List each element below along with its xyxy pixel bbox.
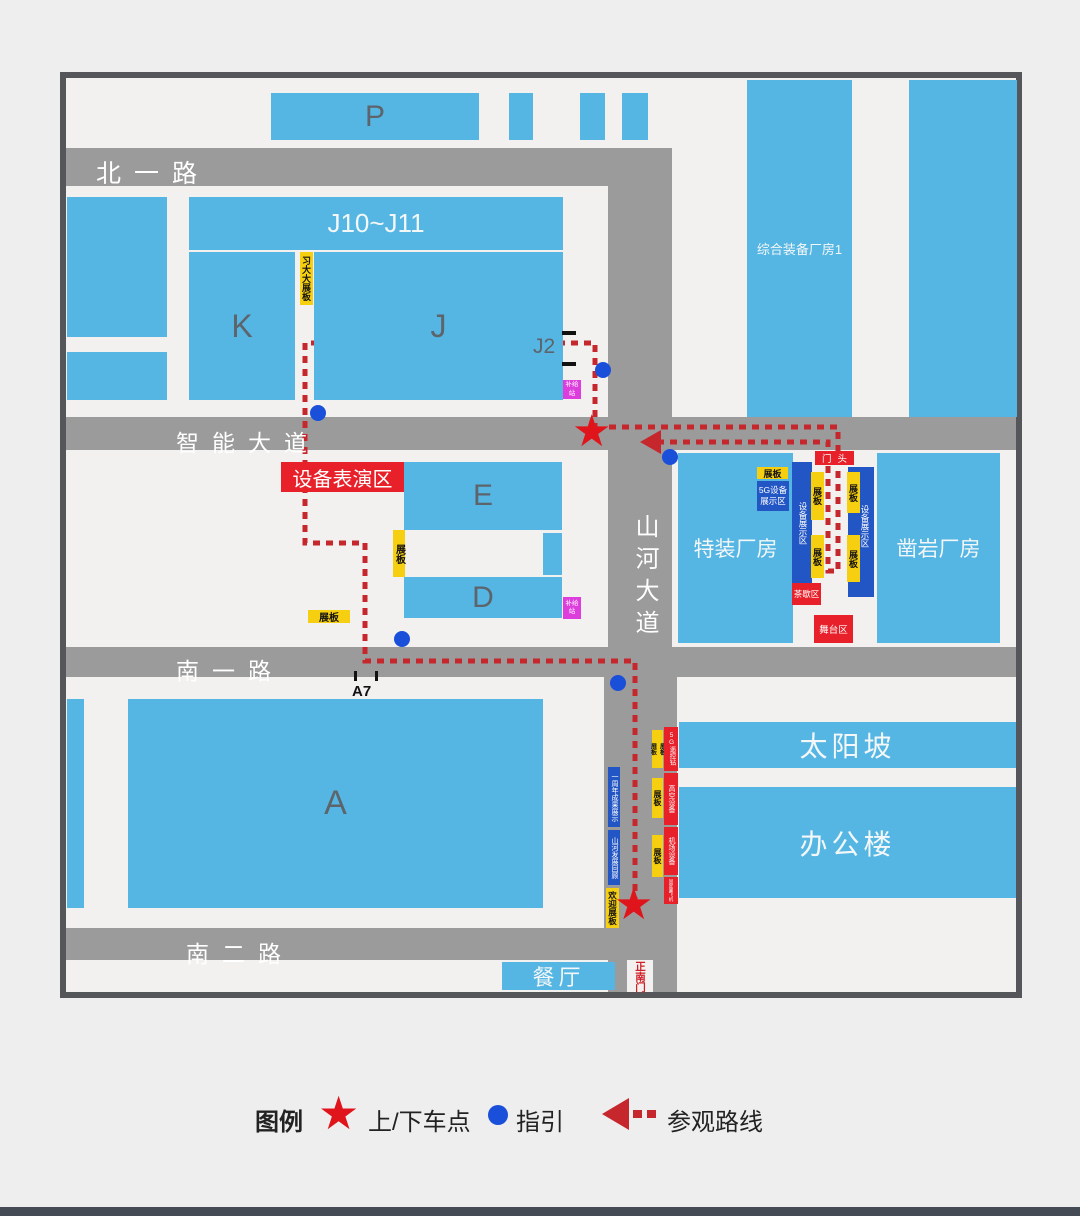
legend-arrow-icon bbox=[602, 1098, 629, 1130]
building-e: E bbox=[404, 462, 562, 530]
display-board-corridor-r2: 展板 bbox=[847, 535, 860, 582]
guide-dot-3 bbox=[662, 449, 678, 465]
building-ed-connector bbox=[543, 533, 562, 575]
display-board-corridor-l1: 展板 bbox=[811, 472, 824, 520]
building-west-sliver bbox=[67, 699, 84, 908]
display-board-east-3: 展板 bbox=[652, 835, 663, 877]
road-label-south2: 南二路 bbox=[186, 935, 294, 969]
a7-tick-left bbox=[354, 671, 357, 681]
building-j2-label: J2 bbox=[533, 335, 555, 359]
display-board-5g-top: 展板 bbox=[757, 467, 788, 479]
a7-gate-label: A7 bbox=[352, 683, 371, 700]
building-rock-drill-plant: 凿岩厂房 bbox=[877, 453, 1000, 643]
legend-route-dash-1 bbox=[633, 1110, 642, 1118]
display-board-east-2: 展板 bbox=[652, 778, 663, 818]
xi-display-board-strip: 习大大展板 bbox=[300, 252, 313, 305]
legend-guide-label: 指引 bbox=[516, 1102, 564, 1137]
building-d: D bbox=[404, 577, 562, 618]
pickup-star-icon-south: ★ bbox=[614, 883, 653, 927]
building-j10-j11: J10~J11 bbox=[189, 197, 563, 250]
road-label-zhineng: 智能大道 bbox=[176, 424, 320, 458]
display-board-east-1a: 展板 bbox=[649, 743, 658, 755]
road-label-shanhe: 山河大道 bbox=[627, 514, 662, 642]
display-board-southwest: 展板 bbox=[308, 610, 350, 623]
tea-break-area: 茶歇区 bbox=[792, 583, 821, 605]
legend-star-icon: ★ bbox=[318, 1090, 359, 1136]
building-northeast-2 bbox=[909, 80, 1017, 417]
j2-gate-tick-bottom bbox=[562, 362, 576, 366]
a7-tick-right bbox=[375, 671, 378, 681]
road-gate-prong-right bbox=[653, 960, 677, 992]
building-small-2 bbox=[580, 93, 605, 140]
equipment-display-column-left: 设备展示区 bbox=[792, 462, 812, 583]
legend-route-dash-2 bbox=[647, 1110, 656, 1118]
equipment-display-zone-label-left: 设备展示区 bbox=[797, 502, 809, 545]
road-shanhe-top bbox=[608, 186, 672, 420]
building-small-1 bbox=[509, 93, 533, 140]
airport-equipment-strip: 机场设备 bbox=[664, 827, 678, 875]
legend-title: 图例 bbox=[255, 1102, 303, 1137]
guide-dot-2 bbox=[595, 362, 611, 378]
g5-display-zone: 5G设备展示区 bbox=[757, 481, 789, 511]
building-canteen: 餐厅 bbox=[502, 962, 615, 990]
building-small-3 bbox=[622, 93, 648, 140]
building-j: J bbox=[314, 252, 563, 400]
guide-dot-1 bbox=[310, 405, 326, 421]
legend-route-label: 参观路线 bbox=[667, 1102, 763, 1137]
g5-drill-strip: 5G遥控钻 bbox=[664, 727, 678, 771]
supply-station-north: 补给站 bbox=[563, 380, 581, 399]
venue-map-page: 北一路 智能大道 山河大道 南一路 南二路 P J10~J11 K J 习大大展… bbox=[0, 0, 1080, 1216]
display-board-corridor-l2: 展板 bbox=[811, 535, 824, 578]
fixed-wing-strip: 固定翼飞机 bbox=[664, 877, 678, 904]
bottom-edge-bar bbox=[0, 1207, 1080, 1216]
building-office: 办公楼 bbox=[679, 787, 1016, 898]
display-board-corridor-r1: 展板 bbox=[847, 472, 860, 513]
road-label-south1: 南一路 bbox=[176, 652, 284, 686]
supply-station-south: 补给站 bbox=[563, 597, 581, 619]
building-p: P bbox=[271, 93, 479, 140]
pickup-star-icon-north: ★ bbox=[572, 410, 611, 454]
building-comprehensive-plant: 综合装备厂房1 bbox=[747, 80, 852, 417]
building-k: K bbox=[189, 252, 295, 400]
development-exhibit-strip: 山河发展回顾 bbox=[608, 830, 620, 885]
stage-area: 舞台区 bbox=[814, 615, 853, 643]
anniversary-exhibit-strip: 一周年成果展示 bbox=[608, 767, 620, 827]
legend-dot-icon bbox=[488, 1105, 508, 1125]
display-board-ed-gap: 展板 bbox=[393, 530, 405, 577]
equipment-show-area: 设备表演区 bbox=[281, 462, 404, 492]
guide-dot-5 bbox=[610, 675, 626, 691]
road-label-north1: 北一路 bbox=[96, 154, 210, 190]
building-west-2 bbox=[67, 352, 167, 400]
legend-pickup-label: 上/下车点 bbox=[368, 1102, 471, 1137]
aerial-equipment-strip: 高空设备 bbox=[664, 773, 678, 825]
j2-gate-tick-top bbox=[562, 331, 576, 335]
gate-head-label: 门头 bbox=[815, 451, 854, 465]
road-south2 bbox=[66, 928, 677, 960]
building-west-1 bbox=[67, 197, 167, 337]
equipment-display-zone-label-right: 设备展示区 bbox=[859, 505, 871, 548]
south-gate-label: 正南门 bbox=[633, 961, 648, 994]
guide-dot-4 bbox=[394, 631, 410, 647]
building-a: A bbox=[128, 699, 543, 908]
building-sun-slope: 太阳坡 bbox=[679, 722, 1016, 768]
display-board-east-1: 展板 展板 bbox=[652, 730, 663, 768]
